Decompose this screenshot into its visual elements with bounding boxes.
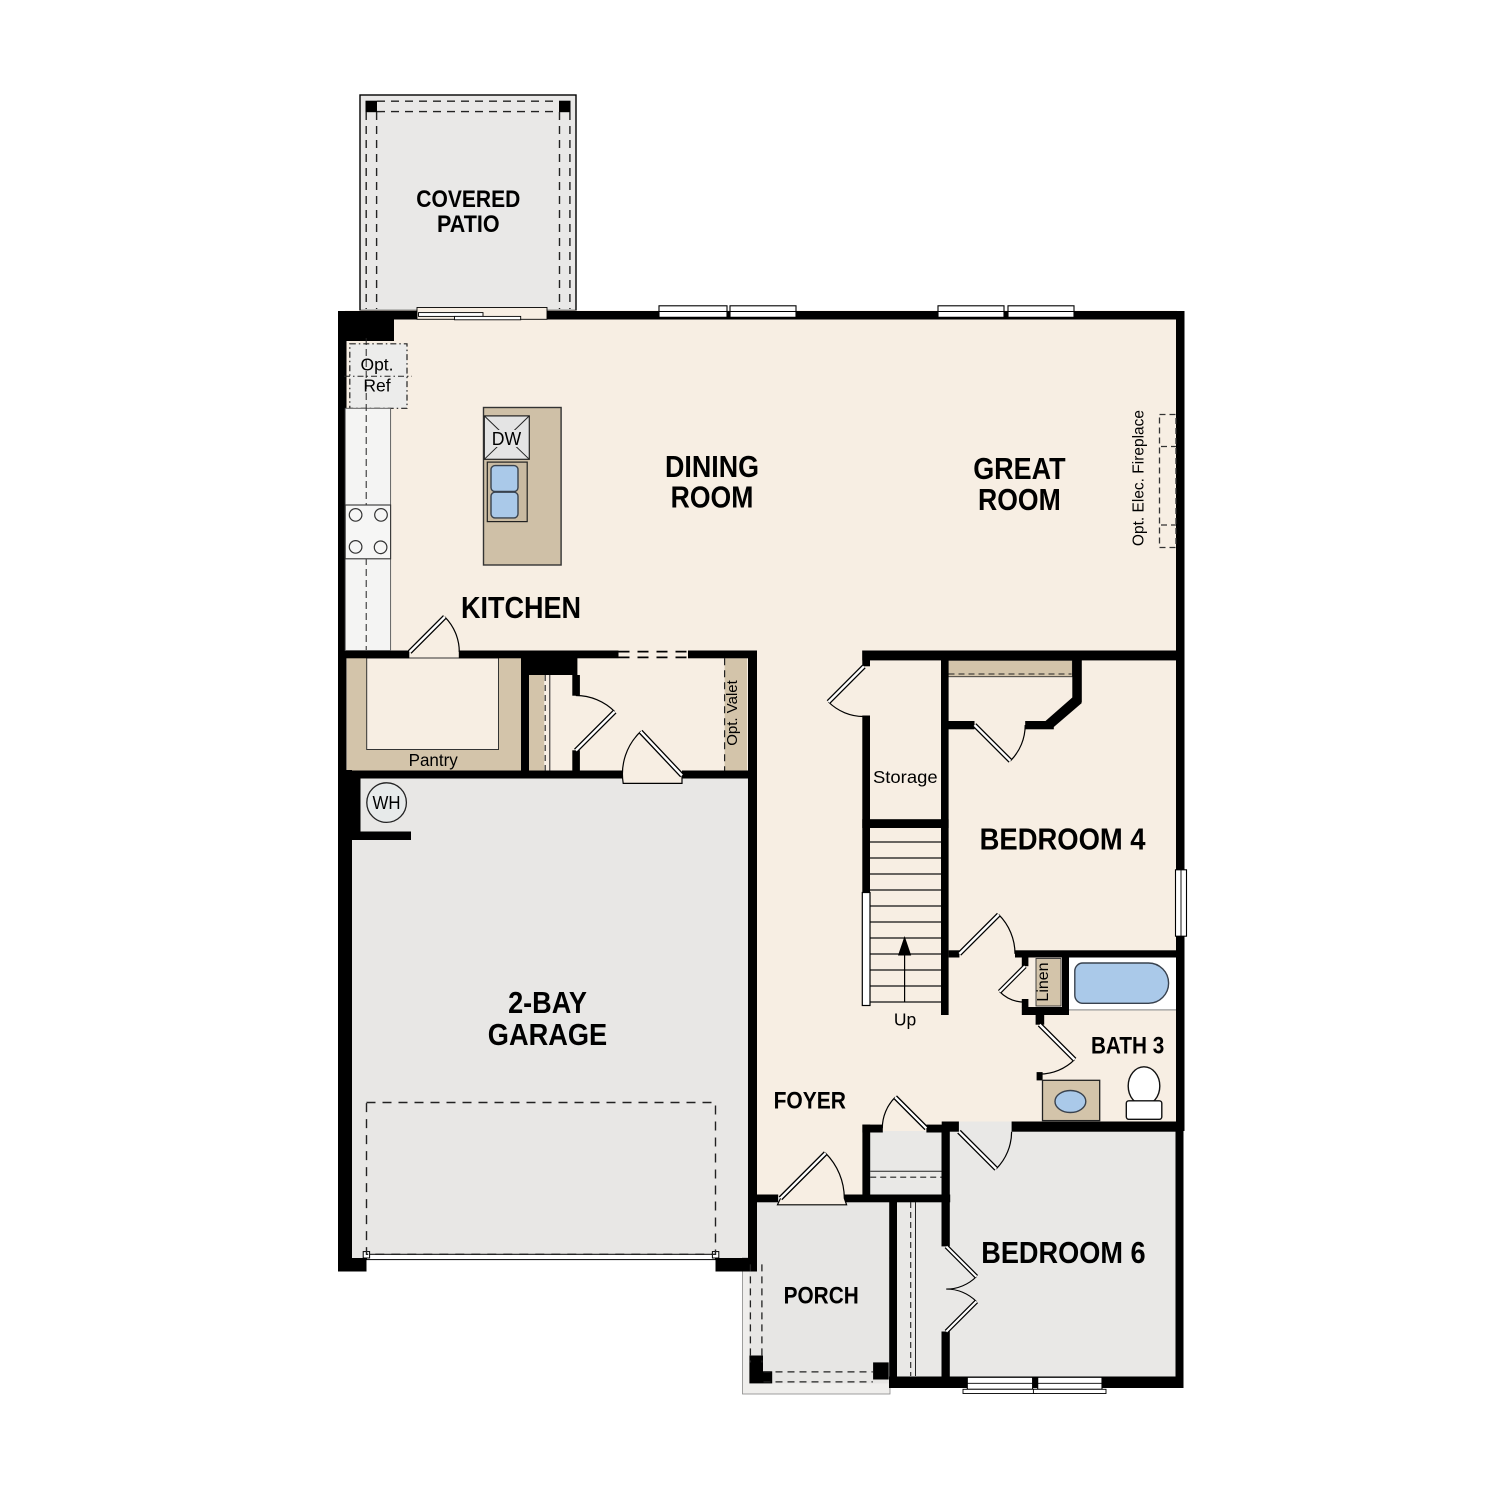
svg-text:DINING: DINING: [665, 449, 759, 484]
svg-text:GREAT: GREAT: [973, 451, 1065, 486]
svg-text:2-BAY: 2-BAY: [508, 985, 587, 1020]
svg-text:Linen: Linen: [1035, 962, 1052, 1001]
svg-text:WH: WH: [373, 792, 401, 813]
svg-text:ROOM: ROOM: [978, 482, 1061, 517]
svg-text:Opt. Valet: Opt. Valet: [724, 679, 741, 745]
svg-text:Pantry: Pantry: [409, 750, 458, 770]
svg-text:Up: Up: [894, 1010, 916, 1030]
svg-text:BATH 3: BATH 3: [1091, 1033, 1164, 1060]
svg-text:BEDROOM 6: BEDROOM 6: [981, 1235, 1145, 1270]
svg-text:Ref: Ref: [363, 376, 390, 396]
svg-text:PATIO: PATIO: [437, 211, 500, 238]
svg-text:BEDROOM 4: BEDROOM 4: [980, 821, 1147, 856]
svg-text:KITCHEN: KITCHEN: [461, 590, 581, 625]
svg-text:FOYER: FOYER: [774, 1087, 846, 1114]
svg-text:COVERED: COVERED: [416, 186, 520, 213]
svg-text:DW: DW: [492, 428, 522, 449]
svg-text:Opt.: Opt.: [360, 355, 393, 375]
svg-text:PORCH: PORCH: [784, 1282, 859, 1309]
svg-text:ROOM: ROOM: [671, 480, 754, 515]
svg-text:Storage: Storage: [873, 767, 938, 787]
svg-text:Opt. Elec. Fireplace: Opt. Elec. Fireplace: [1131, 410, 1148, 546]
svg-text:GARAGE: GARAGE: [488, 1017, 607, 1052]
